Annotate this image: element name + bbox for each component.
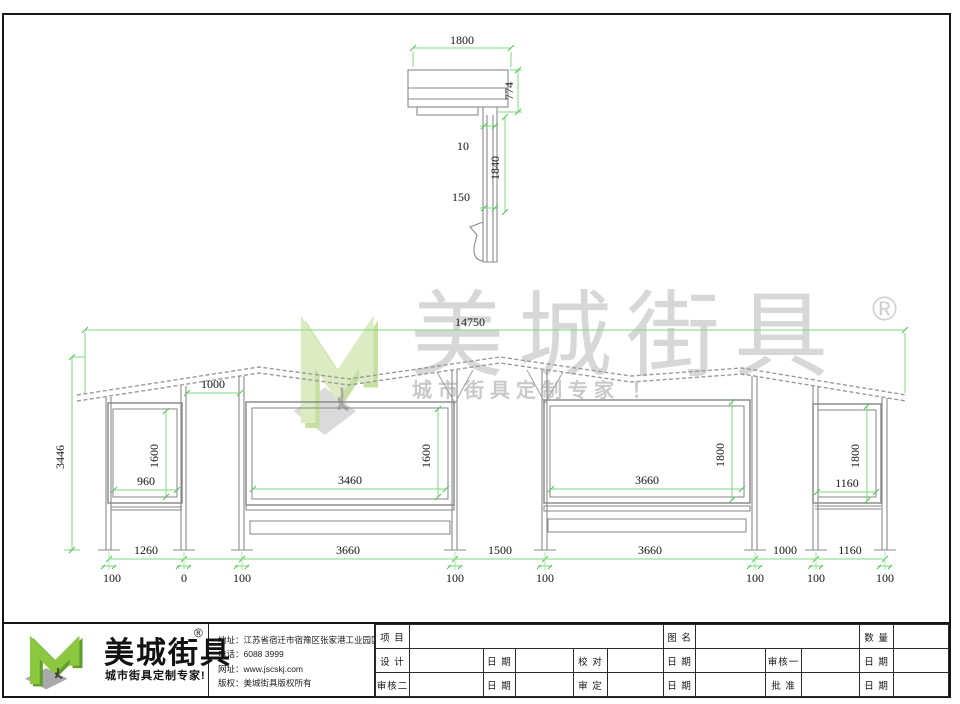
design-value (410, 649, 484, 673)
dim-offset-1: 0 (181, 571, 187, 585)
review1-label: 审核一 (766, 649, 802, 673)
proofread-label: 校 对 (574, 649, 608, 673)
quantity-value (894, 625, 949, 649)
ratify-value (802, 673, 860, 697)
address-line: 地址：江苏省宿迁市宿豫区张家港工业园区南斗路西侧1号 (218, 633, 374, 647)
dim-total-width: 14750 (455, 315, 485, 329)
roof-braces (437, 370, 563, 403)
side-view-dimensions: 1800 774 10 1840 150 (410, 33, 522, 215)
panel-a-lightbox (108, 403, 182, 510)
date-label: 日 期 (484, 673, 516, 697)
date-value (696, 673, 766, 697)
proofread-value (608, 649, 664, 673)
title-block-row-1: 项 目 图 名 数 量 (376, 625, 949, 649)
posts (98, 370, 896, 550)
company-tagline: 城市街具定制专家! (105, 667, 206, 683)
copyright-line: 版权：美城街具版权所有 (218, 676, 374, 690)
title-block-table: 项 目 图 名 数 量 设 计 日 期 校 对 日 期 审核一 (375, 624, 949, 697)
dim-panel-b-width: 3460 (338, 473, 362, 487)
company-name: 美城街具 (104, 628, 232, 672)
quantity-label: 数 量 (860, 625, 894, 649)
project-value (410, 625, 664, 649)
date-value (516, 649, 574, 673)
ratify-label: 批 准 (766, 673, 802, 697)
drawing-name-value (696, 625, 860, 649)
side-roof-bracket (417, 107, 478, 115)
dim-side-roof-depth: 774 (502, 82, 516, 100)
date-value (894, 649, 949, 673)
dim-side-post-length: 1840 (488, 156, 502, 180)
date-value (894, 673, 949, 697)
dim-offset-5: 100 (746, 571, 764, 585)
elevation: 14750 3446 1000 1600 960 1600 3460 1800 … (53, 315, 908, 585)
dim-roof-gap: 1000 (201, 377, 225, 391)
dim-span-3: 3660 (638, 543, 662, 557)
dim-span-2: 1500 (488, 543, 512, 557)
title-block-table-section: 项 目 图 名 数 量 设 计 日 期 校 对 日 期 审核一 (374, 624, 949, 696)
dim-span-0: 1260 (134, 543, 158, 557)
company-m-icon (16, 630, 104, 694)
drawing-sheet: 美城街具 ® 城市街具定制专家 ！ 1800 (0, 0, 960, 704)
dim-panel-a-height: 1600 (147, 444, 161, 468)
side-seat-bracket (470, 222, 483, 261)
cad-drawing: 1800 774 10 1840 150 (0, 0, 960, 620)
date-label: 日 期 (860, 649, 894, 673)
dim-span-5: 1160 (838, 543, 862, 557)
dim-panel-d-width: 1160 (835, 476, 859, 490)
date-value (696, 649, 766, 673)
dim-total-height: 3446 (53, 445, 67, 469)
bench (548, 519, 746, 532)
dim-panel-c-height: 1800 (713, 443, 727, 467)
title-block: 美城街具 ® 城市街具定制专家! 地址：江苏省宿迁市宿豫区张家港工业园区南斗路西… (2, 622, 951, 698)
side-roof-layers (408, 88, 508, 99)
date-value (516, 673, 574, 697)
dim-span-4: 1000 (773, 543, 797, 557)
review2-value (410, 673, 484, 697)
dim-offset-4: 100 (536, 571, 554, 585)
dim-side-width: 1800 (450, 33, 474, 47)
dim-panel-d-height: 1800 (848, 444, 862, 468)
dim-side-offset: 150 (452, 190, 470, 204)
dim-offset-0: 100 (103, 571, 121, 585)
registered-trademark-icon: ® (194, 626, 203, 640)
title-block-row-2: 设 计 日 期 校 对 日 期 审核一 日 期 (376, 649, 949, 673)
title-block-row-3: 审核二 日 期 审 定 日 期 批 准 日 期 (376, 673, 949, 697)
design-label: 设 计 (376, 649, 410, 673)
contact-info: 地址：江苏省宿迁市宿豫区张家港工业园区南斗路西侧1号 电话：6088 3999 … (208, 624, 374, 696)
dim-panel-a-width: 960 (137, 474, 155, 488)
company-logo-section: 美城街具 ® 城市街具定制专家! (4, 624, 208, 696)
drawing-name-label: 图 名 (664, 625, 696, 649)
dim-offset-2: 100 (233, 571, 251, 585)
date-label: 日 期 (664, 673, 696, 697)
approve-label: 审 定 (574, 673, 608, 697)
date-label: 日 期 (860, 673, 894, 697)
dim-offset-6: 100 (807, 571, 825, 585)
project-label: 项 目 (376, 625, 410, 649)
website-line: 网址：www.jscskj.com (218, 662, 374, 676)
date-label: 日 期 (664, 649, 696, 673)
dim-span-1: 3660 (336, 543, 360, 557)
dim-offset-3: 100 (446, 571, 464, 585)
approve-value (608, 673, 664, 697)
panel-d-lightbox (813, 404, 881, 509)
dim-panel-c-width: 3660 (635, 473, 659, 487)
review2-label: 审核二 (376, 673, 410, 697)
phone-line: 电话：6088 3999 (218, 647, 374, 661)
dim-side-gap: 10 (457, 139, 469, 153)
review1-value (802, 649, 860, 673)
dim-panel-b-height: 1600 (419, 444, 433, 468)
date-label: 日 期 (484, 649, 516, 673)
bench (250, 521, 450, 534)
dim-offset-7: 100 (876, 571, 894, 585)
side-post (483, 107, 497, 262)
